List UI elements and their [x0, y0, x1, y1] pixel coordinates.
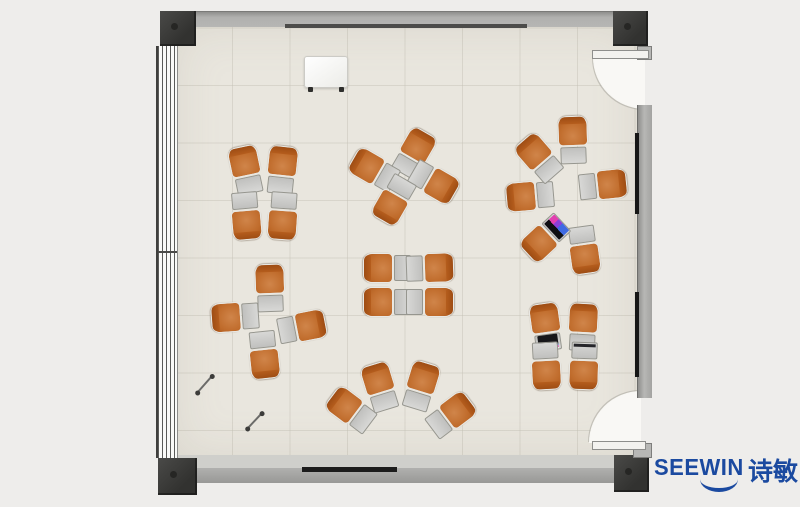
- brand-logo-cjk: 诗敏: [748, 452, 798, 488]
- chair: [528, 301, 562, 335]
- chair: [568, 242, 602, 276]
- desk: [257, 295, 284, 313]
- wall-bottom-trim: [302, 467, 397, 472]
- chair: [293, 308, 328, 343]
- desk: [406, 289, 423, 315]
- floorplan-canvas: SEEWIN 诗敏: [0, 0, 800, 507]
- furniture-layer: [0, 0, 800, 507]
- wall-right-glass-strip: [635, 133, 639, 214]
- chair: [248, 347, 281, 380]
- pen-marker: [196, 375, 212, 393]
- desk: [406, 255, 424, 282]
- window-wall-left: [156, 46, 178, 458]
- chair: [424, 287, 454, 317]
- desk-chair-unit: [578, 168, 629, 203]
- desk-chair-unit: [363, 287, 411, 317]
- chair: [363, 287, 393, 317]
- pen-marker: [246, 412, 262, 429]
- door-leaf-top: [592, 50, 649, 59]
- whiteboard: [304, 56, 348, 88]
- desk: [536, 181, 555, 208]
- desk-chair-unit: [363, 253, 411, 283]
- desk-chair-unit: [266, 191, 299, 241]
- desk-chair-unit: [265, 145, 300, 196]
- brand-logo-smile-arc: [700, 478, 738, 492]
- chair: [210, 302, 242, 334]
- chair: [531, 359, 563, 391]
- chair: [226, 143, 262, 179]
- desk-chair-unit: [247, 330, 282, 381]
- corner-post-bottom-right: [614, 455, 649, 492]
- chair: [568, 302, 600, 334]
- desk-chair-unit: [517, 211, 573, 266]
- chair: [363, 253, 393, 283]
- corner-post-bottom-left: [158, 458, 197, 495]
- chair: [266, 209, 298, 241]
- desk-chair-unit: [405, 252, 454, 284]
- brand-logo: SEEWIN 诗敏: [654, 452, 798, 496]
- desk-chair-unit: [568, 341, 600, 390]
- chair: [423, 252, 454, 283]
- wall-right-glass-strip: [635, 292, 639, 377]
- desk-chair-unit: [254, 263, 286, 312]
- chair: [231, 209, 264, 242]
- chair: [254, 263, 285, 294]
- corner-post-top-left: [160, 11, 196, 46]
- desk: [231, 191, 258, 210]
- desk: [249, 330, 277, 350]
- desk-chair-unit: [226, 143, 265, 196]
- desk-chair-unit: [400, 359, 443, 414]
- wall-right: [637, 105, 652, 398]
- desk-chair-unit: [406, 287, 454, 317]
- chair: [568, 359, 599, 390]
- desk-chair-unit: [276, 308, 329, 347]
- desk-chair-unit: [505, 179, 555, 213]
- corner-post-top-right: [613, 11, 648, 46]
- desk-chair-unit: [530, 341, 562, 391]
- desk: [578, 173, 598, 201]
- chair: [557, 115, 588, 146]
- chair: [266, 145, 299, 178]
- chair: [505, 181, 538, 214]
- desk-chair-unit: [210, 300, 260, 333]
- chair: [595, 168, 628, 201]
- desk: [532, 341, 559, 359]
- desk-chair-unit: [229, 191, 263, 241]
- desk: [271, 191, 298, 210]
- wall-top-trim: [285, 24, 527, 28]
- desk: [241, 302, 260, 329]
- desk-chair-unit: [557, 115, 589, 164]
- door-leaf-bottom: [592, 441, 646, 450]
- desk: [560, 147, 587, 165]
